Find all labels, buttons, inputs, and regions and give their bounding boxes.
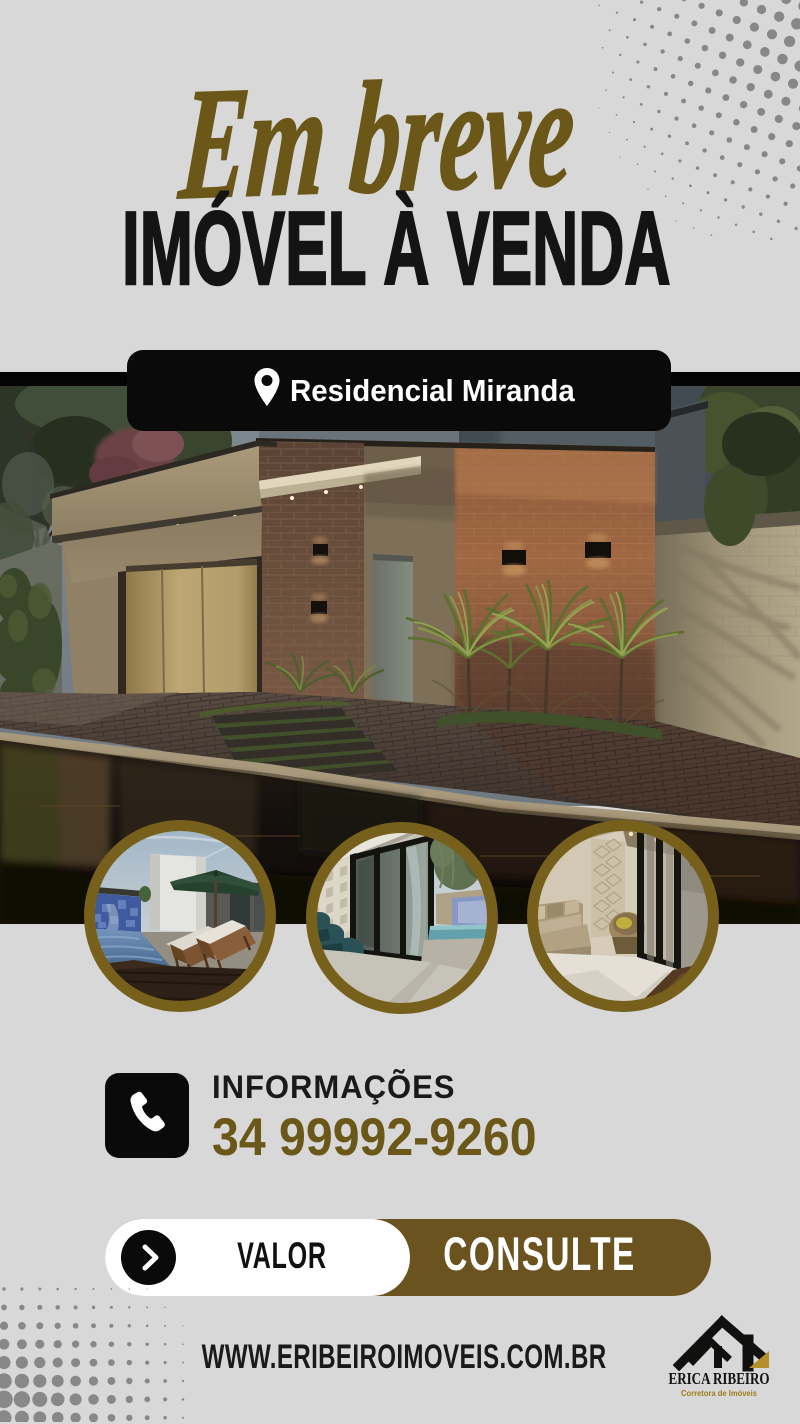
svg-text:Corretora de Imóveis: Corretora de Imóveis — [681, 1388, 757, 1398]
svg-text:ERICA RIBEIRO: ERICA RIBEIRO — [669, 1369, 770, 1388]
